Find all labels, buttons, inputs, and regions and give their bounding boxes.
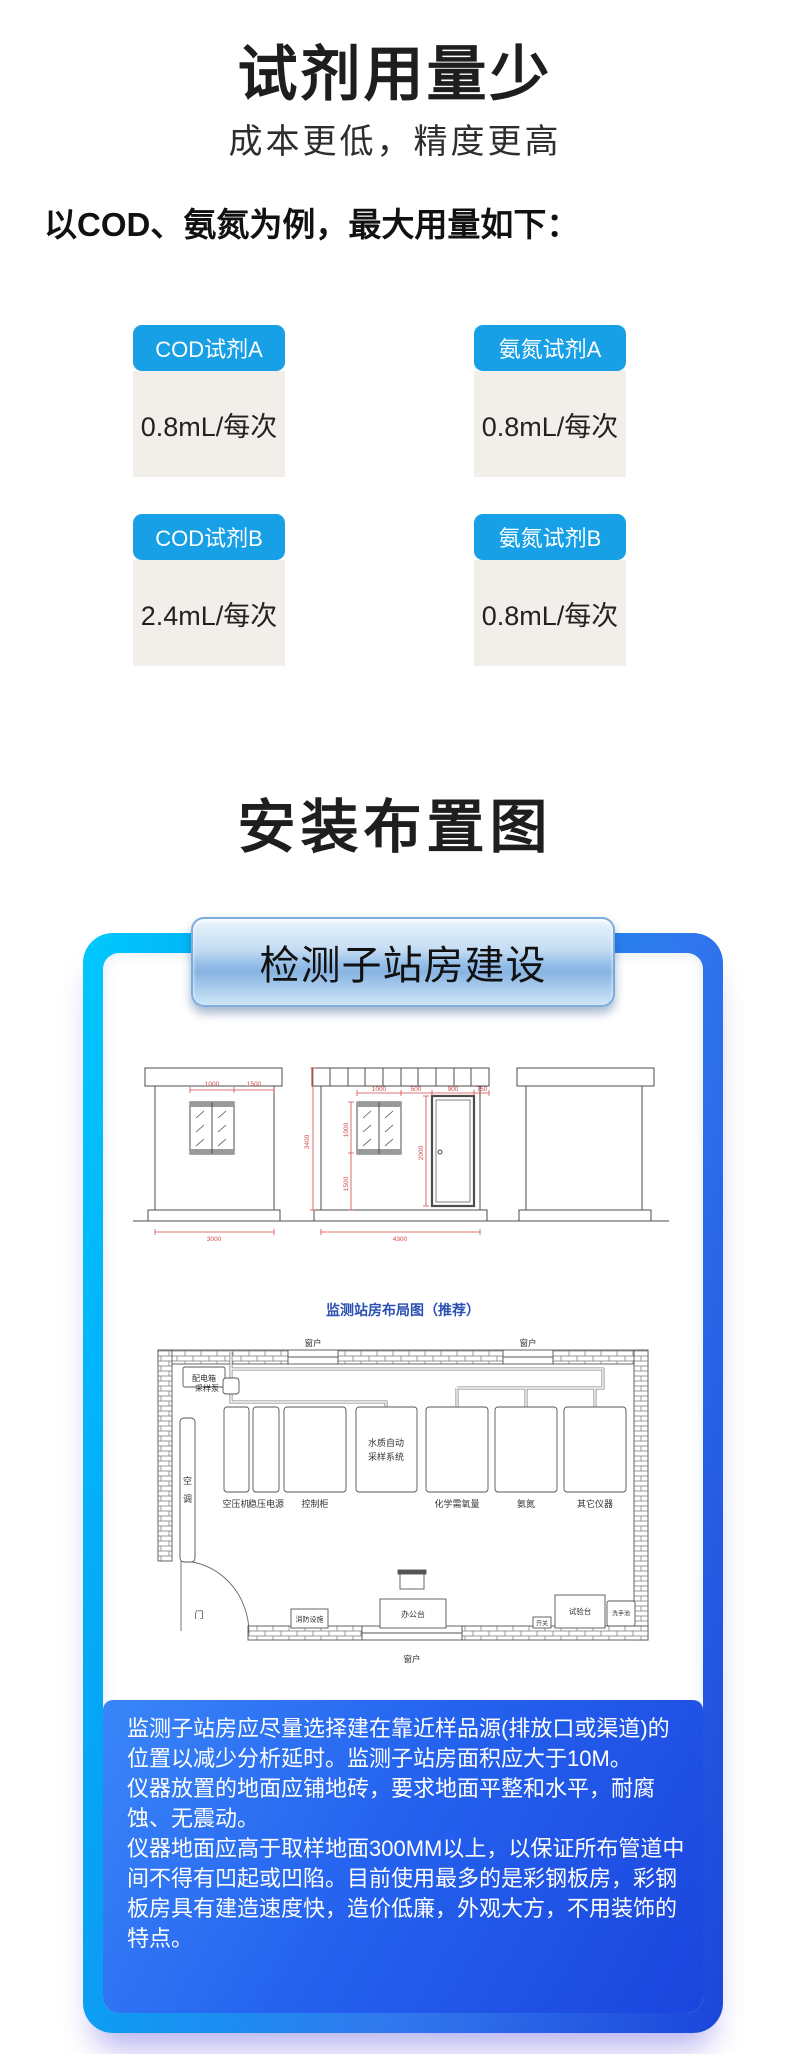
intro-text: 以COD、氨氮为例，最大用量如下： xyxy=(44,198,579,246)
reagent-card: 氨氮试剂B 0.8mL/每次 xyxy=(474,514,626,666)
equipment-box xyxy=(224,1407,249,1492)
reagent-value: 0.8mL/每次 xyxy=(474,560,626,666)
floor-plan: 窗户 窗户 窗户 门 配电箱 采样泵 空 调 水质自动 采样系统 空压机 稳压电… xyxy=(153,1336,653,1671)
window-label: 窗户 xyxy=(519,1338,536,1348)
dim-label: 500 xyxy=(411,1086,422,1093)
sampler-label-1: 水质自动 xyxy=(368,1437,404,1448)
window-label: 窗户 xyxy=(304,1338,321,1348)
dim-label: 1000 xyxy=(205,1081,220,1088)
dim-label: 1000 xyxy=(372,1086,387,1093)
equipment-label: 氨氮 xyxy=(517,1498,535,1509)
reagent-badge: 氨氮试剂A xyxy=(474,325,626,371)
sink-label: 洗手池 xyxy=(612,1610,630,1618)
plan-caption: 监测站房布局图（推荐） xyxy=(326,1300,480,1318)
door-symbol xyxy=(181,1561,249,1633)
fire-label: 消防设施 xyxy=(296,1615,324,1624)
dim-label: 3400 xyxy=(304,1134,311,1149)
dim-label: 1000 xyxy=(343,1122,350,1137)
equipment-label: 控制柜 xyxy=(301,1498,328,1509)
station-card: 检测子站房建设 xyxy=(83,933,723,2033)
reagent-card: COD试剂B 2.4mL/每次 xyxy=(133,514,285,666)
notes-panel: 监测子站房应尽量选择建在靠近样品源(排放口或渠道)的位置以减少分析延时。监测子站… xyxy=(103,1700,703,2013)
page-subtitle: 成本更低，精度更高 xyxy=(0,114,790,163)
ac-label-2: 调 xyxy=(183,1494,192,1504)
window-label: 窗户 xyxy=(403,1654,420,1664)
sampler-label-2: 采样系统 xyxy=(368,1451,404,1462)
dim-label: 2000 xyxy=(418,1145,425,1160)
elevation-drawings: 1000 1500 3000 3400 1000 500 900 750 100… xyxy=(133,1060,673,1250)
monitor-top xyxy=(398,1570,426,1574)
equipment-box xyxy=(426,1407,488,1492)
reagent-value: 0.8mL/每次 xyxy=(474,371,626,477)
section-title: 安装布置图 xyxy=(0,780,790,864)
reagent-badge: 氨氮试剂B xyxy=(474,514,626,560)
note-paragraph: 监测子站房应尽量选择建在靠近样品源(排放口或渠道)的位置以减少分析延时。监测子站… xyxy=(127,1714,685,1774)
switch-label: 开关 xyxy=(536,1620,548,1628)
page-title: 试剂用量少 xyxy=(0,26,790,113)
dim-label: 900 xyxy=(448,1086,459,1093)
dim-label: 3000 xyxy=(207,1236,222,1243)
equipment-box xyxy=(253,1407,279,1492)
reagent-badge: COD试剂A xyxy=(133,325,285,371)
reagent-badge: COD试剂B xyxy=(133,514,285,560)
product-page: 试剂用量少 成本更低，精度更高 以COD、氨氮为例，最大用量如下： COD试剂A… xyxy=(0,0,790,2054)
equipment-label: 稳压电源 xyxy=(248,1498,284,1509)
note-paragraph: 仪器地面应高于取样地面300MM以上，以保证所布管道中间不得有凹起或凹陷。目前使… xyxy=(127,1834,685,1954)
equipment-label: 其它仪器 xyxy=(577,1498,613,1509)
equipment-box xyxy=(495,1407,557,1492)
station-card-body: 1000 1500 3000 3400 1000 500 900 750 100… xyxy=(103,953,703,2013)
equipment-box xyxy=(564,1407,626,1492)
pump-label: 采样泵 xyxy=(195,1383,219,1393)
sampler-box xyxy=(356,1407,417,1492)
bench-label: 试验台 xyxy=(569,1606,592,1616)
reagent-value: 2.4mL/每次 xyxy=(133,560,285,666)
equipment-label: 化学需氧量 xyxy=(434,1498,479,1509)
reagent-card: COD试剂A 0.8mL/每次 xyxy=(133,325,285,477)
monitor-box xyxy=(400,1574,424,1589)
equipment-box xyxy=(284,1407,346,1492)
reagent-card: 氨氮试剂A 0.8mL/每次 xyxy=(474,325,626,477)
power-box-label: 配电箱 xyxy=(192,1373,216,1383)
equipment-label: 空压机 xyxy=(222,1498,249,1509)
station-card-header: 检测子站房建设 xyxy=(191,917,615,1007)
ac-label-1: 空 xyxy=(183,1475,192,1486)
dim-label: 1500 xyxy=(247,1081,262,1088)
reagent-value: 0.8mL/每次 xyxy=(133,371,285,477)
ac-unit xyxy=(180,1418,195,1562)
dim-label: 1500 xyxy=(343,1176,350,1191)
desk-label: 办公台 xyxy=(401,1609,425,1619)
door-label: 门 xyxy=(194,1609,203,1620)
pump-box xyxy=(223,1378,239,1394)
dim-label: 4300 xyxy=(393,1236,408,1243)
note-paragraph: 仪器放置的地面应铺地砖，要求地面平整和水平，耐腐蚀、无震动。 xyxy=(127,1774,685,1834)
dim-label: 750 xyxy=(477,1086,488,1093)
